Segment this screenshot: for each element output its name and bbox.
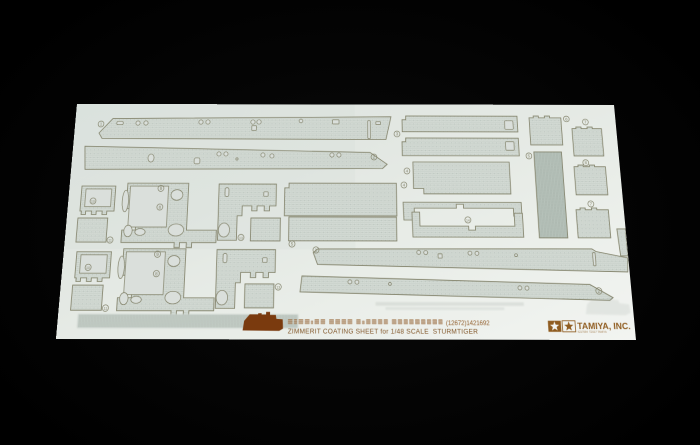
svg-text:11: 11 [108, 238, 112, 242]
svg-text:10: 10 [91, 199, 95, 203]
svg-text:10: 10 [86, 266, 90, 271]
svg-text:11: 11 [103, 306, 107, 311]
svg-text:(12672)1421692: (12672)1421692 [446, 320, 490, 327]
svg-text:ZIMMERIT COATING SHEET for 1/4: ZIMMERIT COATING SHEET for 1/48 SCALE ST… [288, 329, 479, 336]
svg-text:13: 13 [239, 236, 243, 240]
svg-text:6217094 ©2017 TAMIYA: 6217094 ©2017 TAMIYA [578, 330, 608, 334]
svg-text:14: 14 [466, 218, 470, 222]
svg-text:13: 13 [276, 285, 280, 290]
